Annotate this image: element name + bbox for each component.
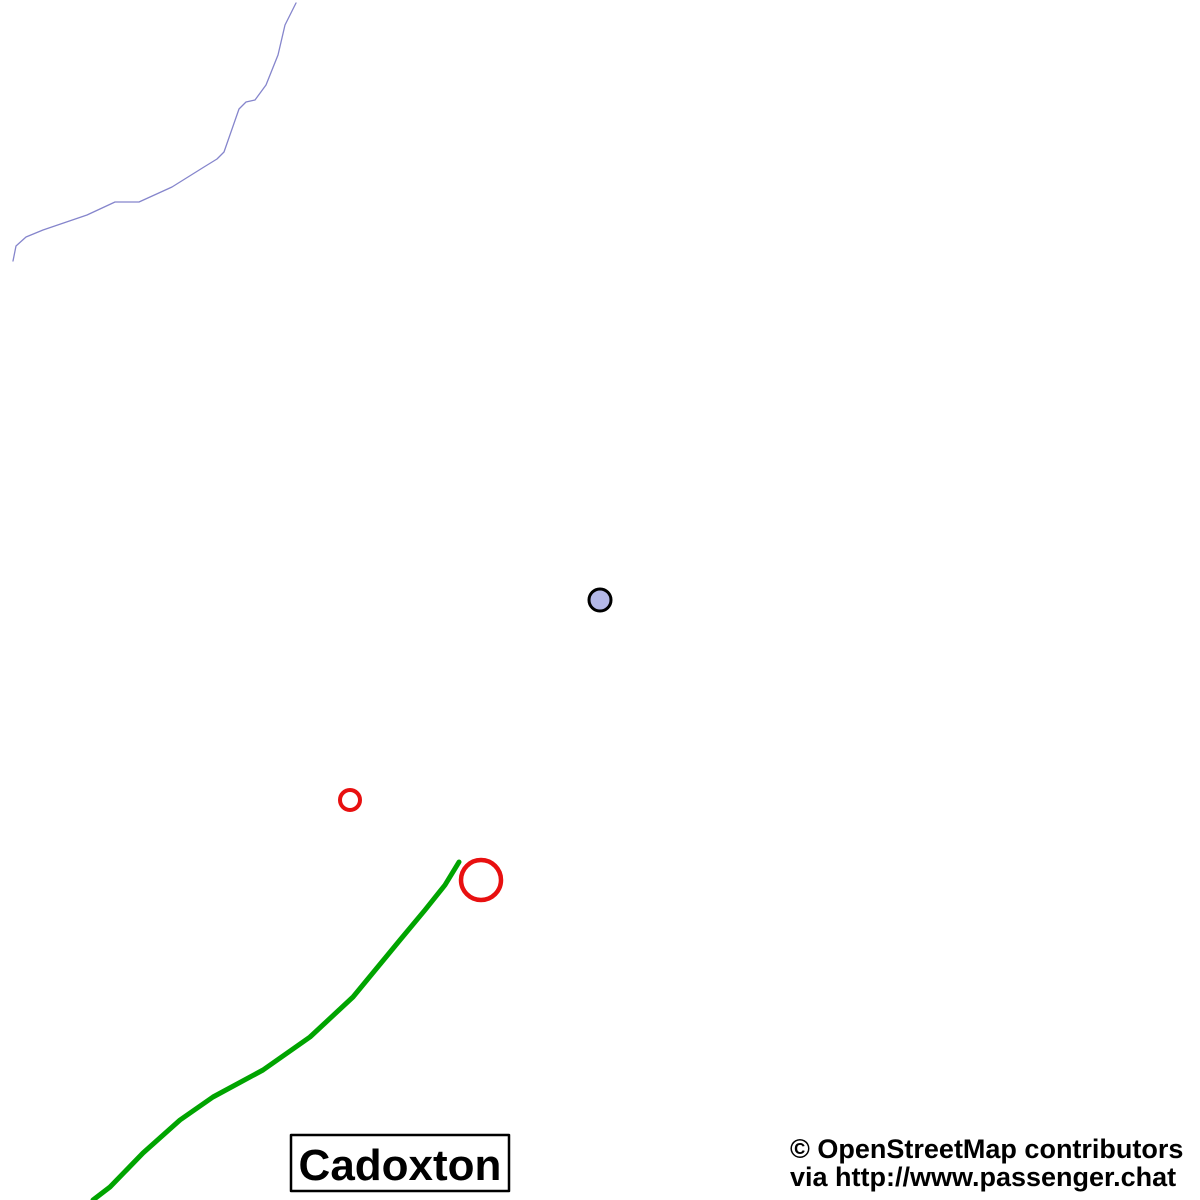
svg-text:Cadoxton: Cadoxton <box>299 1141 502 1190</box>
svg-text:via http://www.passenger.chat: via http://www.passenger.chat <box>790 1162 1176 1192</box>
svg-text:© OpenStreetMap contributors: © OpenStreetMap contributors <box>790 1134 1183 1164</box>
